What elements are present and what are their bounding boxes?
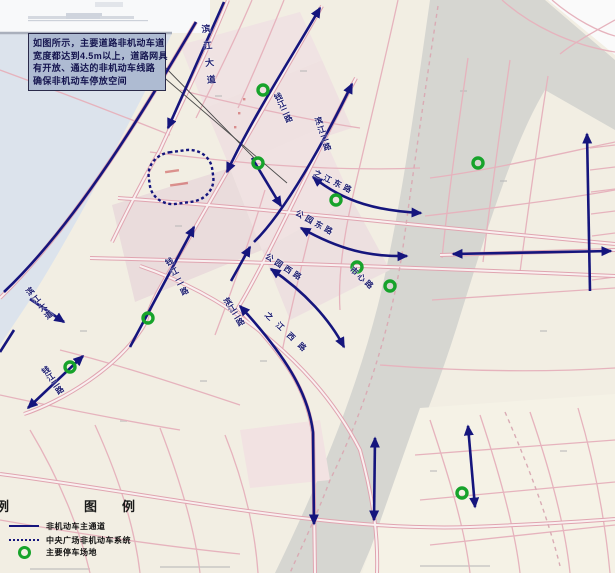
annotation-box: 如图所示，主要道路非机动车道 宽度都达到4.5m以上，道路网具 有开放、通达的非… <box>28 33 166 91</box>
legend-item-main-route: 非机动车主通道 <box>8 520 106 532</box>
legend-title: 图 例 <box>84 496 141 515</box>
planning-map-page: 如图所示，主要道路非机动车道 宽度都达到4.5m以上，道路网具 有开放、通达的非… <box>0 0 615 573</box>
solid-line-symbol <box>8 525 40 527</box>
legend-item-parking: 主要停车场地 <box>8 546 97 558</box>
legend-item-label: 主要停车场地 <box>46 547 97 558</box>
green-circle-symbol <box>8 546 40 559</box>
annotation-line: 宽度都达到4.5m以上，道路网具 <box>33 50 161 63</box>
legend-item-label: 中央广场非机动车系统 <box>46 535 131 546</box>
annotation-line: 确保非机动车停放空间 <box>33 75 161 88</box>
legend-title-partial: 例 <box>0 496 9 515</box>
annotation-line: 如图所示，主要道路非机动车道 <box>33 37 161 50</box>
bicycle-route-arrow <box>374 438 375 520</box>
legend-item-label: 非机动车主通道 <box>46 521 106 532</box>
legend-item-central-plaza: 中央广场非机动车系统 <box>8 534 131 546</box>
annotation-line: 有开放、通达的非机动车线路 <box>33 62 161 75</box>
dashed-line-symbol <box>8 539 40 541</box>
